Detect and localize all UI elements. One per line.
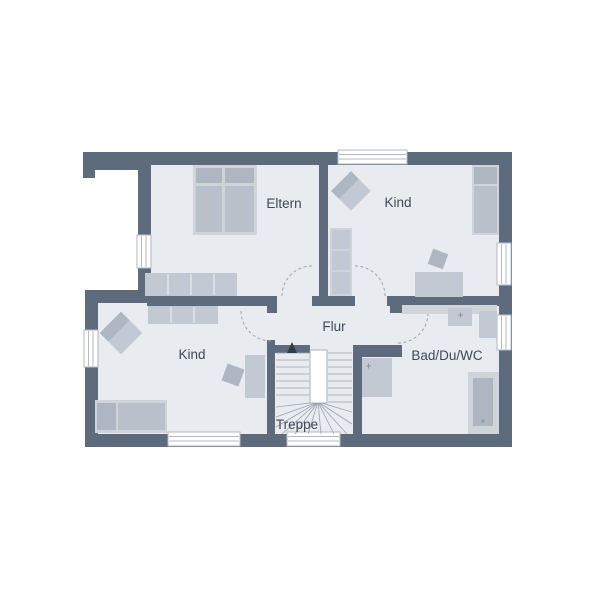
sideboard-eltern bbox=[145, 273, 237, 296]
wall-topleft-fragment bbox=[83, 152, 147, 170]
wardrobe bbox=[245, 355, 265, 398]
sink bbox=[448, 308, 472, 326]
wall-topleft-tab bbox=[83, 170, 95, 178]
wall-stairs-right bbox=[353, 357, 362, 434]
window-left-eltern bbox=[137, 235, 151, 268]
single-bed bbox=[472, 165, 499, 235]
floorplan-drawing: Eltern Kind Flur Kind Bad/Du/WC Treppe bbox=[0, 0, 600, 600]
wall-left-connector bbox=[85, 290, 147, 303]
desk bbox=[415, 272, 463, 297]
floorplan-canvas: Eltern Kind Flur Kind Bad/Du/WC Treppe bbox=[0, 0, 600, 600]
wall-mid-right-segment bbox=[387, 296, 499, 306]
label-treppe: Treppe bbox=[276, 417, 318, 432]
wall-eltern-kind-divider bbox=[319, 165, 328, 296]
sideboard-kind bbox=[148, 306, 218, 324]
window-right-bad bbox=[497, 315, 511, 350]
wall-mid-left-segment bbox=[147, 296, 277, 306]
stairwell-void bbox=[310, 350, 327, 403]
shower bbox=[468, 372, 499, 434]
window-left-kind bbox=[84, 330, 98, 367]
double-bed bbox=[193, 165, 257, 235]
wall-top bbox=[147, 152, 512, 165]
wardrobe-stack bbox=[330, 228, 352, 296]
wall-mid-left-tab bbox=[267, 296, 277, 313]
washer bbox=[362, 358, 392, 397]
label-eltern: Eltern bbox=[266, 196, 301, 211]
label-kind-bottom: Kind bbox=[178, 347, 205, 362]
single-bed bbox=[95, 400, 167, 433]
label-kind-top: Kind bbox=[384, 195, 411, 210]
wall-stairs-bad-top bbox=[353, 345, 402, 357]
window-right-kind bbox=[497, 243, 511, 285]
wall-kind-stairs bbox=[267, 340, 275, 434]
label-bad: Bad/Du/WC bbox=[411, 348, 483, 363]
toilet bbox=[479, 311, 497, 338]
wall-right bbox=[499, 152, 512, 447]
label-flur: Flur bbox=[322, 319, 346, 334]
window-bottom-stairs bbox=[287, 432, 340, 446]
wall-bad-door-stub bbox=[390, 306, 402, 313]
window-top-kind bbox=[338, 150, 407, 164]
wall-mid-center-stub bbox=[312, 296, 355, 306]
window-bottom-kind bbox=[168, 432, 240, 446]
